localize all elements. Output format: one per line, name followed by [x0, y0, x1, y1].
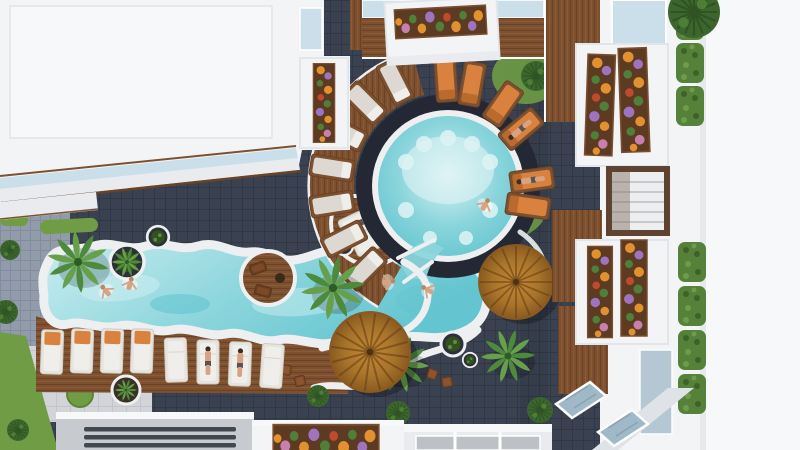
round-planter	[441, 332, 465, 356]
round-planter	[463, 353, 477, 367]
lounge-island	[241, 251, 295, 305]
flower-box	[313, 64, 334, 143]
top-band	[362, 0, 544, 66]
flower-box	[621, 240, 647, 336]
pavement-planter	[112, 376, 140, 404]
flower-box	[618, 48, 650, 153]
roof-planter	[273, 425, 379, 450]
top-balcony-planter	[385, 0, 500, 66]
roof-window	[300, 8, 322, 50]
louvered-window	[606, 166, 670, 236]
right-building	[544, 0, 800, 450]
umbrella	[479, 245, 553, 319]
roof-window	[612, 0, 666, 44]
resort-aerial-render	[0, 0, 800, 450]
flower-box	[588, 246, 613, 337]
round-planter	[147, 226, 169, 248]
lagoon-island-planter	[110, 245, 144, 279]
scene-canvas	[0, 0, 800, 450]
flower-box	[585, 54, 616, 156]
